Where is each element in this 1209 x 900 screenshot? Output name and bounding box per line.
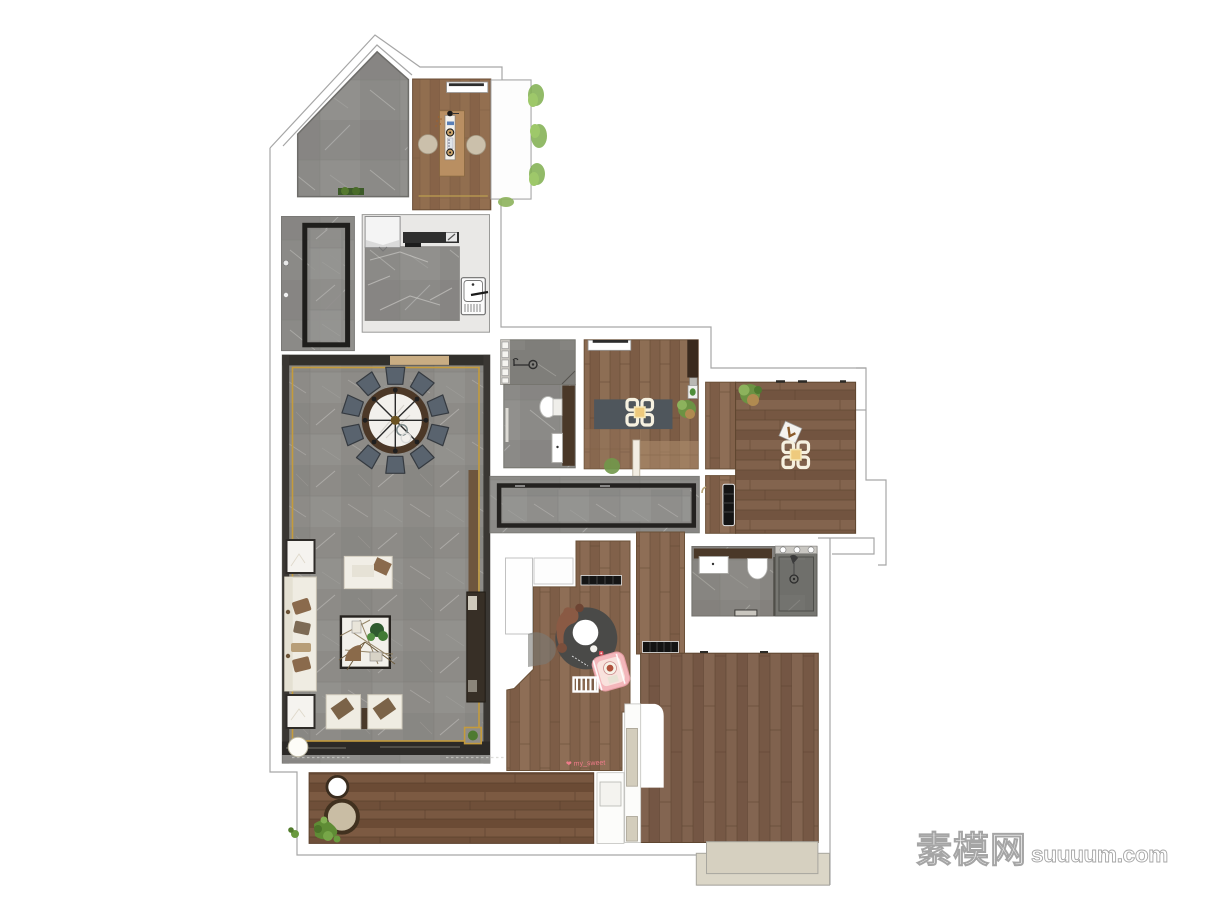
svg-text:suuuum.com: suuuum.com <box>1031 842 1168 867</box>
svg-text:素模网: 素模网 <box>916 829 1027 870</box>
svg-text:❤ my_sweet: ❤ my_sweet <box>566 760 606 768</box>
